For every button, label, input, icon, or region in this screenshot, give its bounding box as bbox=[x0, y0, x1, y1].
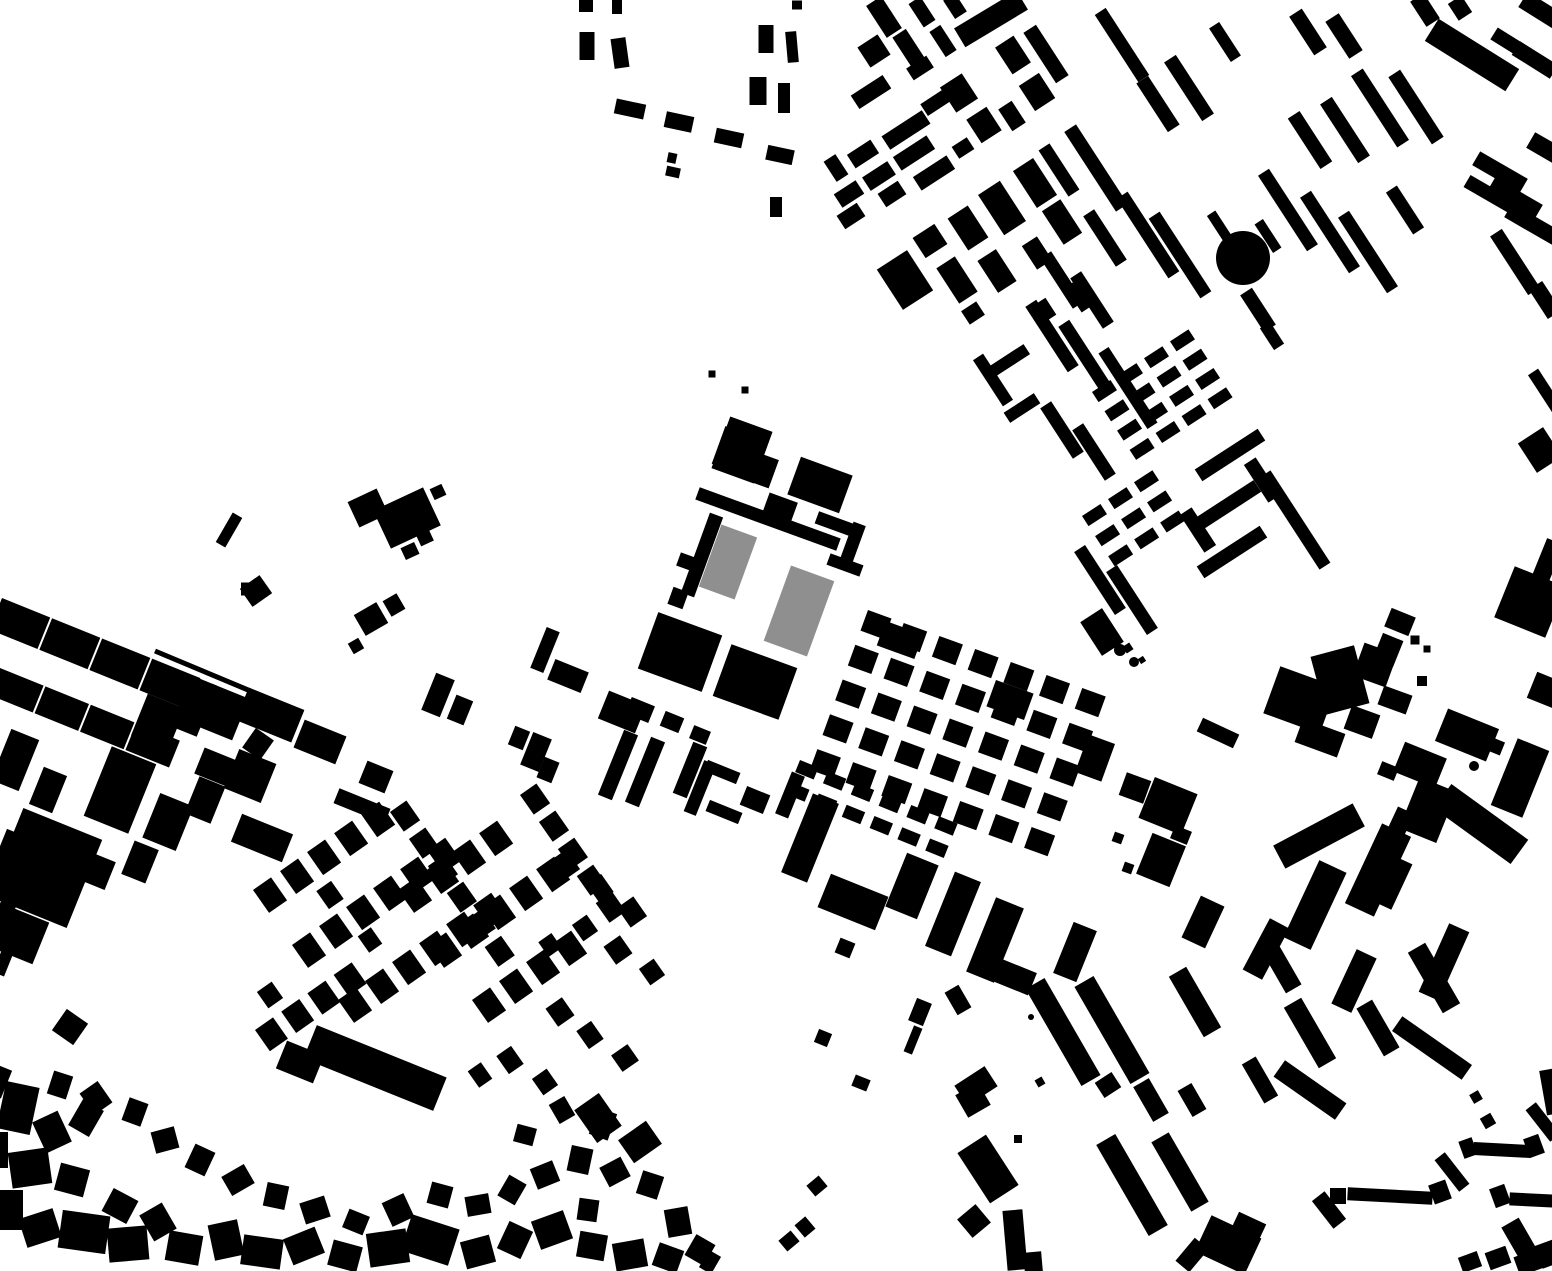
figure-ground-map bbox=[0, 0, 1552, 1271]
building-footprint bbox=[750, 77, 767, 105]
building-footprint bbox=[580, 32, 595, 60]
circular-building-footprint bbox=[1129, 657, 1139, 667]
building-footprint bbox=[612, 1238, 648, 1271]
circular-building-footprint bbox=[1114, 644, 1126, 656]
building-footprint bbox=[0, 1190, 23, 1230]
building-footprint bbox=[709, 371, 716, 378]
building-footprint bbox=[165, 1230, 204, 1265]
building-footprint bbox=[792, 1, 802, 10]
building-footprint bbox=[58, 1210, 111, 1254]
building-footprint bbox=[770, 197, 782, 217]
building-footprint bbox=[612, 0, 622, 14]
building-footprint bbox=[1330, 1188, 1346, 1204]
building-footprint bbox=[1014, 1135, 1022, 1143]
building-footprint bbox=[1411, 636, 1420, 645]
building-footprint bbox=[664, 1206, 692, 1238]
building-footprint bbox=[1509, 1192, 1552, 1207]
building-footprint bbox=[742, 387, 749, 394]
circular-building-footprint bbox=[1216, 231, 1270, 285]
building-footprint bbox=[759, 25, 774, 53]
building-footprint bbox=[464, 1193, 491, 1217]
building-footprint bbox=[576, 1231, 608, 1261]
circular-building-footprint bbox=[1469, 761, 1479, 771]
building-footprint bbox=[1417, 676, 1427, 686]
circular-building-footprint bbox=[1028, 1014, 1034, 1020]
building-footprint bbox=[240, 1234, 284, 1269]
building-footprint-layer bbox=[0, 0, 1552, 1271]
building-footprint bbox=[579, 0, 593, 12]
building-footprint bbox=[778, 83, 790, 113]
building-footprint bbox=[1424, 646, 1431, 653]
building-footprint bbox=[1023, 1251, 1043, 1271]
building-footprint bbox=[8, 1147, 53, 1188]
building-footprint bbox=[577, 1198, 600, 1223]
building-footprint bbox=[107, 1225, 150, 1262]
building-footprint bbox=[0, 1132, 8, 1168]
